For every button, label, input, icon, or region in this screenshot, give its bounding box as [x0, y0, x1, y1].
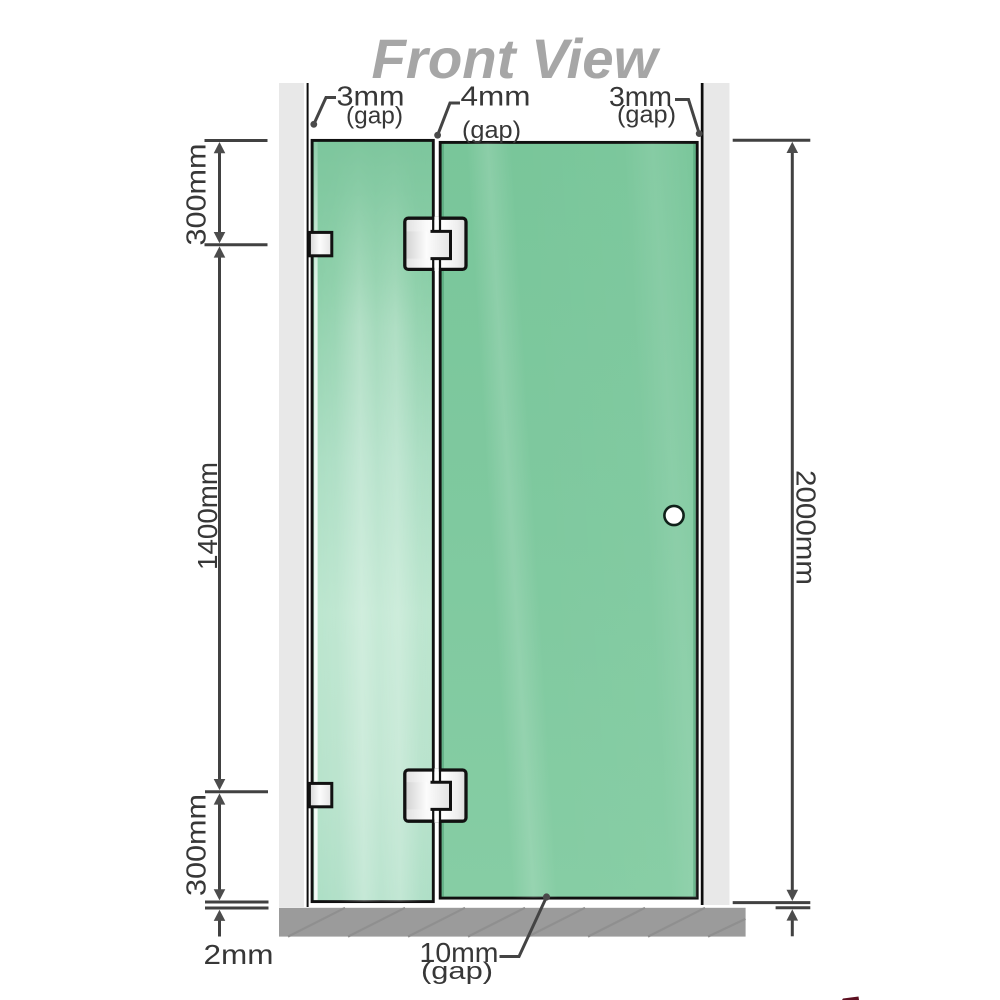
- svg-text:2000mm: 2000mm: [791, 470, 822, 585]
- svg-text:300mm: 300mm: [181, 794, 212, 896]
- svg-text:(gap): (gap): [462, 117, 521, 144]
- svg-text:1400mm: 1400mm: [192, 462, 223, 570]
- svg-text:2mm: 2mm: [204, 939, 274, 970]
- svg-text:(gap): (gap): [617, 102, 676, 129]
- svg-text:300mm: 300mm: [181, 144, 212, 246]
- svg-text:(gap): (gap): [421, 958, 493, 985]
- svg-text:(gap): (gap): [346, 103, 403, 130]
- svg-text:Front View: Front View: [372, 27, 661, 90]
